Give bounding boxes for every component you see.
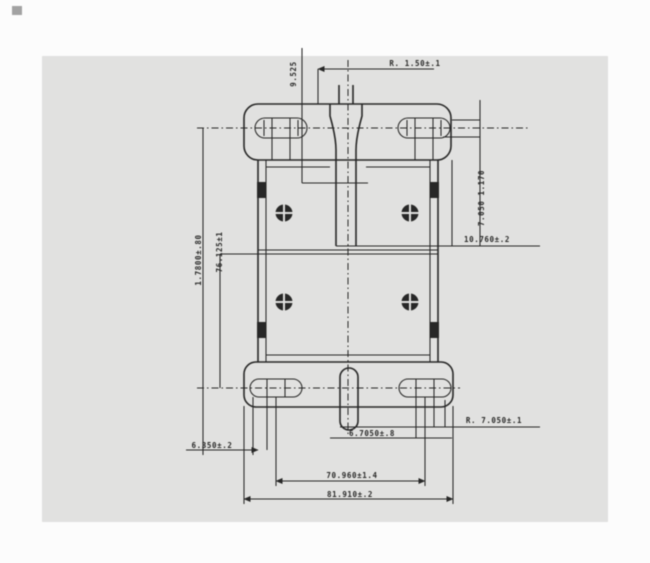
dim-label-bottom-width-inner: 70.960±1.4 [326,471,377,480]
dim-label-bottom-width-outer: 81.910±.2 [327,490,373,499]
scanned-drawing-page: 9.525 R. 1.50±.1 7.050 1.170 10.760±.2 1… [0,0,650,563]
dim-label-bottom-left: 6.350±.2 [192,441,233,450]
dim-label-right-vertical: 7.050 1.170 [477,170,486,226]
technical-drawing: 9.525 R. 1.50±.1 7.050 1.170 10.760±.2 1… [0,0,650,563]
dim-label-right-mid: 10.760±.2 [464,235,510,244]
dim-label-bottom-right-radius: R. 7.050±.1 [466,416,522,425]
scan-paper [42,56,608,522]
edge-tick [430,182,439,198]
edge-tick [430,322,439,338]
dim-label-top-vertical: 9.525 [289,61,298,87]
dim-label-left-outer: 1.7800±.80 [194,234,203,285]
scan-artifact-speck [12,6,22,15]
edge-tick [257,182,266,198]
dim-label-left-inner: 76.125±1 [215,232,224,273]
dim-label-bottom-center: 6.7050±.8 [349,429,395,438]
dim-label-top-right-radius: R. 1.50±.1 [389,59,440,68]
edge-tick [257,322,266,338]
